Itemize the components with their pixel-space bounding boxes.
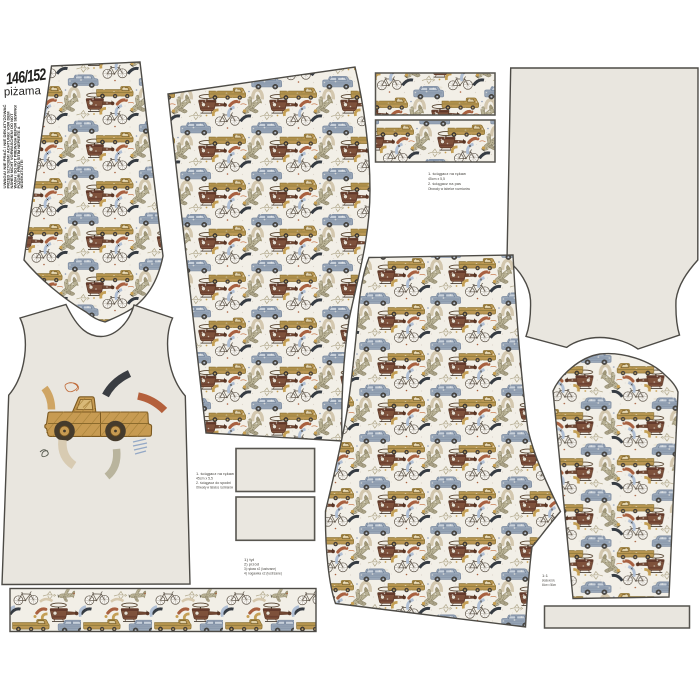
svg-text:skala wzoru: skala wzoru <box>542 579 555 583</box>
svg-text:Obwody w tabelce rozmiarów: Obwody w tabelce rozmiarów <box>428 187 470 191</box>
svg-text:1:1: 1:1 <box>542 574 548 578</box>
svg-text:2. ściągacz do spodni: 2. ściągacz do spodni <box>196 481 231 485</box>
svg-text:1. ściągacz na rękaw: 1. ściągacz na rękaw <box>196 472 234 476</box>
svg-text:piżama: piżama <box>4 85 42 98</box>
svg-text:46cm x 56cm: 46cm x 56cm <box>542 583 556 587</box>
svg-text:1. ściągacz na rękaw: 1. ściągacz na rękaw <box>428 172 466 176</box>
svg-text:45cm x 5,5: 45cm x 5,5 <box>196 477 213 481</box>
svg-text:NEDEKATUJTE!: NEDEKATUJTE! <box>20 160 24 189</box>
svg-text:4) nogawka x2 (lustrzane): 4) nogawka x2 (lustrzane) <box>244 572 283 576</box>
svg-text:3) rękaw x2 (lustrzane): 3) rękaw x2 (lustrzane) <box>244 567 277 571</box>
svg-text:2) przód: 2) przód <box>244 563 259 567</box>
svg-text:45cm x 5,5: 45cm x 5,5 <box>428 177 445 181</box>
svg-text:2. ściągacz na pas: 2. ściągacz na pas <box>428 182 461 186</box>
svg-text:Obwody w tabelce rozmiarów: Obwody w tabelce rozmiarów <box>196 486 233 490</box>
svg-text:1) tył: 1) tył <box>244 558 254 562</box>
